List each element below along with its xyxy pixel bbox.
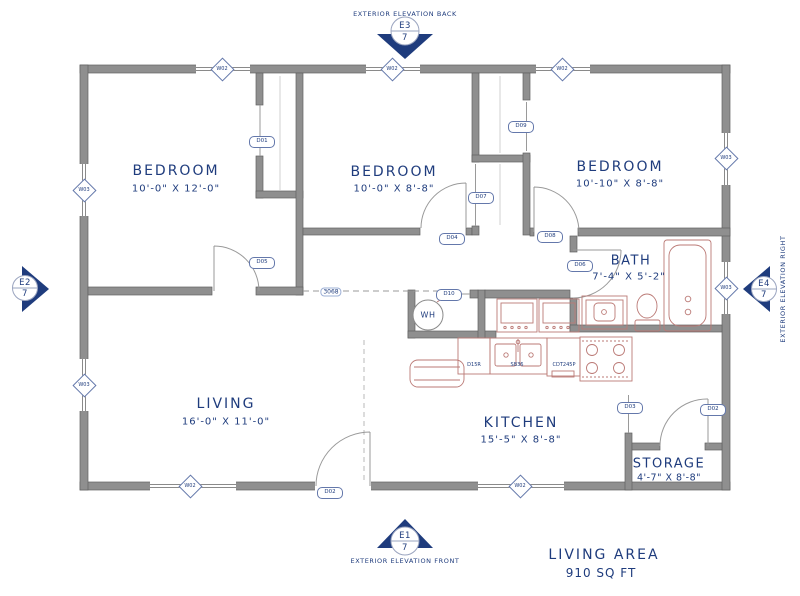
elevation-right-label: EXTERIOR ELEVATION RIGHT	[779, 235, 787, 342]
room-dims-bedroom-2: 10'-0" X 8'-8"	[354, 184, 435, 195]
door-tag: D07	[468, 192, 494, 204]
window-tag: W03	[714, 276, 738, 300]
elevation-front-sheet: 7	[402, 543, 408, 553]
water-heater-label: WH	[421, 311, 436, 320]
opening-size-label: 3068	[320, 288, 341, 297]
door-tag: D04	[439, 233, 465, 245]
living-area-title: LIVING AREA	[548, 547, 659, 563]
cabinet-label: CDT245P	[553, 362, 576, 368]
window-tag: W02	[550, 57, 574, 81]
elevation-left-id: E2	[19, 278, 31, 288]
elevation-back-id: E3	[399, 21, 411, 31]
elevation-front-label: EXTERIOR ELEVATION FRONT	[351, 557, 460, 565]
room-label-living: LIVING	[197, 396, 256, 412]
window-tag: W03	[714, 146, 738, 170]
elevation-back-label: EXTERIOR ELEVATION BACK	[353, 10, 457, 18]
room-label-bedroom-2: BEDROOM	[350, 164, 437, 180]
window-tag: W03	[72, 178, 96, 202]
window-tag: W02	[508, 474, 532, 498]
room-label-bedroom-1: BEDROOM	[132, 163, 219, 179]
cabinet-label: D15R	[467, 362, 481, 368]
door-tag: D10	[436, 289, 462, 301]
elevation-right-id: E4	[758, 279, 770, 289]
door-tag: D09	[508, 121, 534, 133]
window-tag: W03	[72, 373, 96, 397]
room-label-bedroom-3: BEDROOM	[576, 159, 663, 175]
door-tag: D03	[617, 402, 643, 414]
room-label-storage: STORAGE	[633, 457, 705, 472]
cabinet-label: SB36	[511, 362, 524, 368]
room-label-kitchen: KITCHEN	[484, 415, 559, 431]
elevation-front-id: E1	[399, 531, 411, 541]
room-dims-living: 16'-0" X 11'-0"	[182, 417, 270, 428]
room-dims-bath: 7'-4" X 5'-2"	[592, 272, 666, 283]
door-tag: D02	[317, 487, 343, 499]
room-label-bath: BATH	[611, 254, 652, 269]
door-tag: D01	[249, 136, 275, 148]
window-tag: W02	[380, 57, 404, 81]
floor-plan-canvas: BEDROOM 10'-0" X 12'-0" BEDROOM 10'-0" X…	[0, 0, 800, 596]
door-tag: D02	[700, 404, 726, 416]
door-tag: D06	[567, 260, 593, 272]
living-area-value: 910 SQ FT	[566, 566, 637, 580]
door-tag: D05	[249, 257, 275, 269]
room-dims-kitchen: 15'-5" X 8'-8"	[481, 435, 562, 446]
floorplan-drawing	[0, 0, 800, 596]
elevation-right-sheet: 7	[761, 290, 767, 300]
room-dims-storage: 4'-7" X 8'-8"	[637, 473, 701, 484]
room-dims-bedroom-3: 10'-10" X 8'-8"	[576, 179, 664, 190]
door-tag: D08	[537, 231, 563, 243]
elevation-left-sheet: 7	[22, 289, 28, 299]
window-tag: W02	[178, 474, 202, 498]
room-dims-bedroom-1: 10'-0" X 12'-0"	[132, 184, 220, 195]
window-tag: W02	[210, 57, 234, 81]
elevation-back-sheet: 7	[402, 33, 408, 43]
